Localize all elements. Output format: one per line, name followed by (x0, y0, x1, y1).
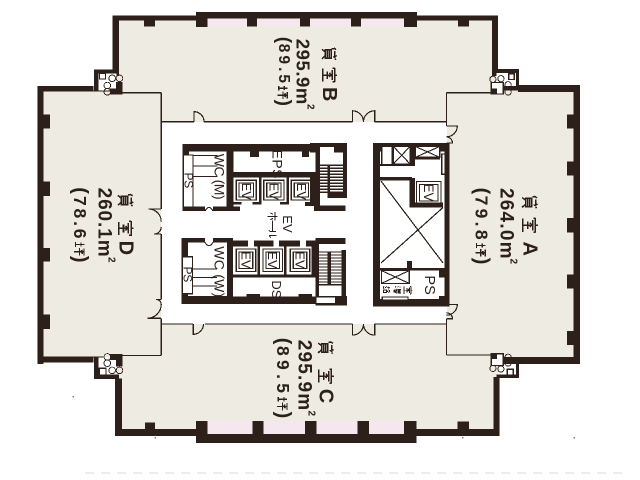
svg-text:): ) (470, 258, 492, 265)
svg-text:2: 2 (305, 104, 316, 110)
svg-text:EV: EV (265, 251, 280, 269)
svg-text:B: B (318, 87, 340, 101)
svg-text:(: ( (273, 37, 294, 44)
svg-text:EV: EV (421, 184, 436, 202)
svg-text:EV: EV (239, 183, 254, 201)
svg-text:WC (M): WC (M) (212, 154, 228, 200)
svg-text:EV: EV (294, 183, 309, 201)
svg-text:DS: DS (269, 280, 284, 298)
svg-text:264.0m: 264.0m (495, 188, 516, 259)
svg-text:EPS: EPS (270, 150, 286, 179)
svg-text:EV: EV (266, 183, 281, 201)
svg-text:EV: EV (280, 215, 295, 233)
svg-text:): ) (272, 412, 294, 419)
svg-text:260.1m: 260.1m (93, 188, 114, 257)
svg-text:(: ( (69, 187, 91, 194)
svg-text:WC (W): WC (W) (212, 246, 228, 297)
svg-text:(: ( (470, 188, 492, 195)
svg-text:): ) (69, 256, 91, 263)
svg-text:C: C (315, 389, 337, 403)
svg-text:(: ( (272, 338, 294, 345)
svg-text:295.9m: 295.9m (292, 39, 313, 105)
svg-text:79.8: 79.8 (471, 196, 491, 240)
svg-text:): ) (273, 100, 294, 106)
svg-text:PS: PS (181, 173, 195, 189)
svg-text:EV: EV (292, 251, 307, 269)
svg-text:PS: PS (181, 267, 195, 283)
svg-text:2: 2 (105, 257, 116, 263)
svg-text:PS: PS (421, 275, 437, 294)
svg-text:EV: EV (238, 251, 253, 269)
svg-text:89.5: 89.5 (275, 44, 292, 84)
svg-text:A: A (519, 242, 541, 256)
svg-text:78.6: 78.6 (70, 196, 90, 239)
svg-text:2: 2 (508, 259, 519, 265)
svg-text:D: D (114, 241, 136, 255)
svg-text:295.9m: 295.9m (294, 340, 315, 411)
svg-text:89.5: 89.5 (273, 346, 293, 393)
svg-text:2: 2 (306, 411, 317, 417)
